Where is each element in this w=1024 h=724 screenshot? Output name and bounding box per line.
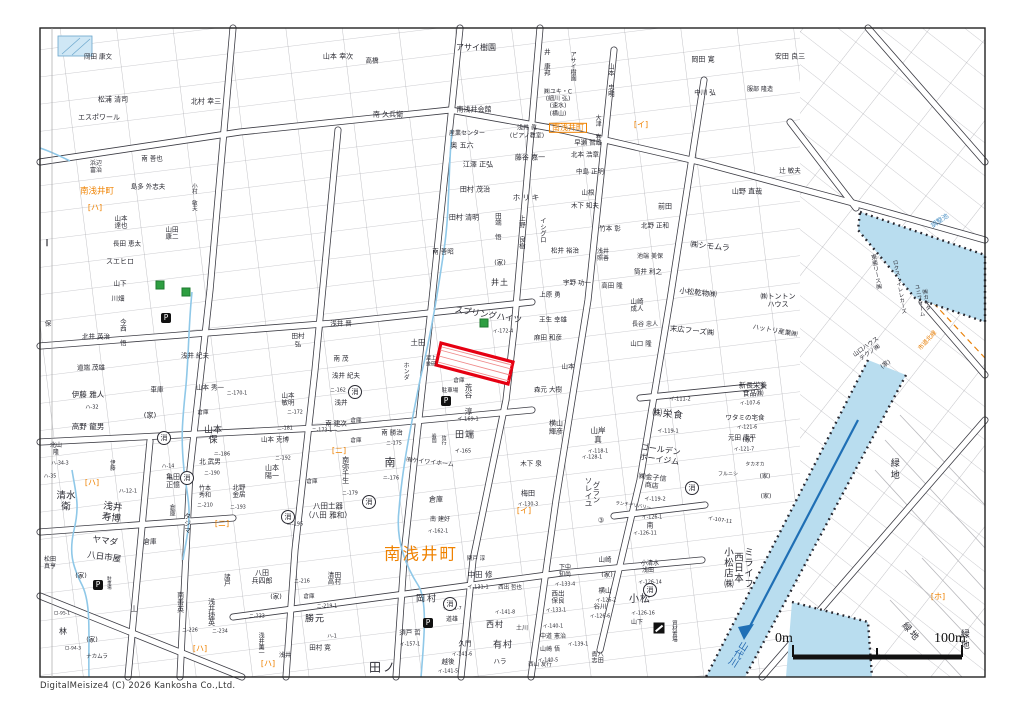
map-canvas: アサイ樹園井 康邦アサイ樹園山本 忠明山本 幸次高橋岡田 康文松浦 清司北村 幸… [0,0,1024,724]
scale-end-label: 100m [934,631,966,647]
copyright-text: DigitalMeisize4 (C) 2026 Kankosha Co.,Lt… [40,681,235,691]
parcel-grid [40,28,800,677]
scale-start-label: 0m [775,631,793,647]
map-geometry [0,0,1024,724]
